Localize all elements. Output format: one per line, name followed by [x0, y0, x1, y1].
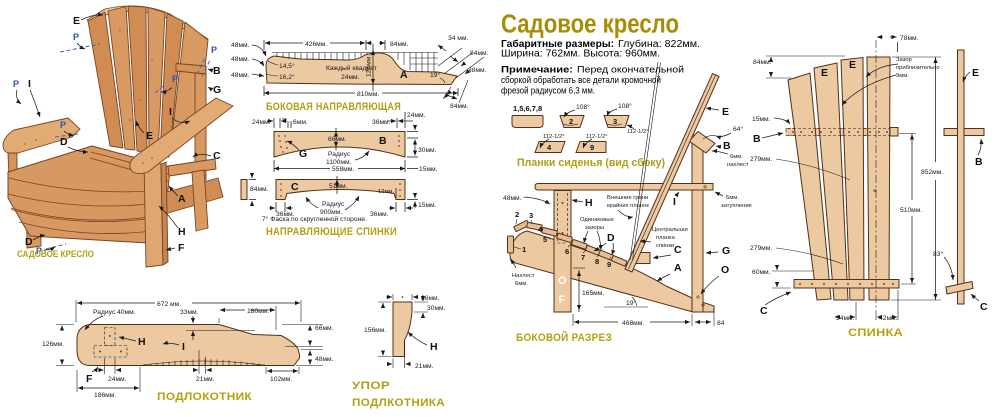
svg-text:D: D: [607, 232, 615, 244]
svg-text:54мм.: 54мм.: [836, 315, 855, 322]
svg-text:180мм.: 180мм.: [247, 308, 269, 315]
svg-text:21мм.: 21мм.: [415, 363, 434, 370]
svg-text:H: H: [585, 197, 593, 209]
svg-text:Ширина: 762мм. Высота: 960мм.: Ширина: 762мм. Высота: 960мм.: [501, 49, 660, 60]
svg-text:H: H: [178, 226, 186, 238]
svg-text:Одинаковые: Одинаковые: [580, 217, 614, 223]
svg-text:42мм.: 42мм.: [879, 315, 898, 322]
svg-text:Радиус 40мм.: Радиус 40мм.: [93, 309, 136, 316]
svg-text:108°: 108°: [618, 102, 632, 110]
svg-text:затупление: затупление: [721, 203, 752, 209]
svg-text:3: 3: [613, 117, 617, 126]
svg-text:84мм.: 84мм.: [753, 59, 772, 66]
svg-text:САДОВОЕ КРЕСЛО: САДОВОЕ КРЕСЛО: [17, 249, 94, 259]
svg-text:9мм.: 9мм.: [896, 73, 909, 79]
svg-text:156мм.: 156мм.: [364, 327, 386, 334]
svg-text:Зазор: Зазор: [896, 57, 912, 63]
svg-text:24мм.: 24мм.: [341, 74, 360, 81]
svg-text:Садовое кресло: Садовое кресло: [501, 11, 679, 39]
svg-text:F: F: [178, 242, 185, 254]
svg-text:спинки: спинки: [656, 243, 674, 249]
svg-text:2: 2: [569, 117, 573, 126]
svg-text:Радиус: Радиус: [328, 151, 351, 158]
svg-text:1100мм.: 1100мм.: [326, 159, 352, 166]
svg-text:78мм.: 78мм.: [900, 35, 919, 42]
svg-text:G: G: [722, 245, 730, 257]
svg-text:33мм.: 33мм.: [180, 309, 199, 316]
svg-text:E: E: [146, 130, 153, 142]
svg-text:510мм.: 510мм.: [900, 207, 922, 214]
svg-text:B: B: [975, 156, 983, 168]
svg-text:426мм.: 426мм.: [305, 41, 327, 48]
svg-text:B: B: [753, 133, 761, 145]
svg-text:A: A: [178, 193, 186, 205]
svg-text:P: P: [73, 32, 79, 42]
svg-text:126мм.: 126мм.: [42, 341, 64, 348]
svg-text:НАПРАВЛЯЮЩИЕ СПИНКИ: НАПРАВЛЯЮЩИЕ СПИНКИ: [266, 226, 397, 238]
svg-text:112-1/2°: 112-1/2°: [627, 129, 649, 135]
svg-text:108°: 108°: [576, 103, 590, 111]
svg-text:48мм.: 48мм.: [231, 56, 250, 63]
svg-text:1,5,6,7,8: 1,5,6,7,8: [513, 104, 542, 113]
svg-text:O: O: [558, 275, 567, 287]
svg-text:зазоры: зазоры: [585, 225, 604, 231]
svg-text:H: H: [430, 341, 438, 353]
svg-text:F: F: [86, 373, 93, 385]
svg-text:Внешние грани: Внешние грани: [607, 195, 648, 201]
svg-text:G: G: [213, 84, 221, 96]
svg-text:6мм.: 6мм.: [293, 119, 308, 126]
svg-text:P: P: [211, 45, 217, 55]
svg-text:P: P: [13, 79, 19, 89]
svg-text:15мм.: 15мм.: [418, 202, 437, 209]
svg-text:112-1/2°: 112-1/2°: [543, 134, 565, 140]
svg-text:B: B: [379, 135, 387, 147]
svg-text:Примечание:: Примечание:: [501, 65, 573, 75]
svg-text:БОКОВАЯ НАПРАВЛЯЮЩАЯ: БОКОВАЯ НАПРАВЛЯЮЩАЯ: [266, 101, 401, 113]
svg-text:фрезой радиусом 6,3 мм.: фрезой радиусом 6,3 мм.: [501, 86, 595, 96]
svg-text:12мм.: 12мм.: [378, 189, 394, 195]
svg-text:6мм.: 6мм.: [730, 154, 743, 160]
svg-text:24мм.: 24мм.: [108, 376, 127, 383]
svg-text:C: C: [674, 244, 682, 256]
svg-text:D: D: [60, 136, 68, 148]
svg-text:I: I: [28, 78, 31, 90]
svg-text:7° Фаска по скругленной сто: 7° Фаска по скругленной стороне.: [262, 215, 367, 223]
svg-text:B: B: [213, 65, 221, 77]
svg-text:A: A: [674, 262, 682, 274]
svg-text:84мм.: 84мм.: [470, 50, 489, 57]
svg-text:279мм.: 279мм.: [750, 245, 772, 252]
svg-text:8: 8: [595, 257, 599, 266]
svg-text:14,5°: 14,5°: [279, 62, 295, 70]
svg-text:38мм.: 38мм.: [468, 67, 487, 74]
svg-text:планка: планка: [656, 235, 676, 241]
svg-text:48мм.: 48мм.: [315, 356, 334, 363]
svg-text:2: 2: [515, 210, 519, 219]
svg-text:51мм.: 51мм.: [329, 183, 348, 190]
svg-text:C: C: [760, 305, 768, 317]
svg-text:C: C: [213, 150, 221, 162]
svg-text:64°: 64°: [733, 125, 743, 133]
svg-text:9: 9: [607, 260, 611, 269]
svg-text:D: D: [25, 236, 33, 248]
svg-text:30мм.: 30мм.: [418, 147, 437, 154]
svg-text:84: 84: [717, 320, 725, 327]
svg-text:F: F: [559, 294, 566, 306]
svg-text:672 мм.: 672 мм.: [157, 301, 181, 308]
svg-text:6: 6: [565, 247, 569, 256]
svg-text:P: P: [60, 120, 66, 130]
svg-text:36мм.: 36мм.: [370, 211, 389, 218]
svg-text:84мм.: 84мм.: [250, 186, 269, 193]
svg-text:112-1/2°: 112-1/2°: [586, 134, 608, 140]
svg-text:E: E: [972, 67, 979, 79]
svg-text:6мм.: 6мм.: [515, 281, 528, 287]
svg-text:P: P: [172, 74, 178, 84]
svg-text:Радиус: Радиус: [322, 201, 345, 208]
svg-text:ПОДЛКОТНИКА: ПОДЛКОТНИКА: [352, 397, 445, 409]
svg-text:9: 9: [590, 143, 594, 152]
svg-text:30мм.: 30мм.: [427, 305, 446, 312]
svg-text:6мм.: 6мм.: [726, 195, 739, 201]
svg-text:E: E: [73, 15, 80, 27]
svg-text:19°: 19°: [430, 71, 440, 79]
svg-text:Нахлест: Нахлест: [512, 273, 535, 279]
svg-text:468мм.: 468мм.: [622, 320, 644, 327]
svg-text:126мм.: 126мм.: [366, 55, 373, 77]
svg-text:24мм.: 24мм.: [252, 119, 271, 126]
svg-text:H: H: [138, 336, 146, 348]
svg-text:I: I: [169, 106, 172, 118]
svg-text:24мм.: 24мм.: [407, 112, 426, 119]
svg-text:34 мм.: 34 мм.: [448, 35, 468, 42]
svg-text:3: 3: [529, 211, 533, 220]
svg-text:60мм.: 60мм.: [752, 269, 771, 276]
svg-text:1: 1: [522, 245, 526, 254]
svg-text:66мм.: 66мм.: [315, 325, 334, 332]
svg-text:558мм.: 558мм.: [332, 166, 354, 173]
svg-text:900мм.: 900мм.: [320, 209, 342, 216]
svg-text:186мм.: 186мм.: [94, 392, 116, 399]
svg-text:84мм.: 84мм.: [450, 103, 469, 110]
svg-text:C: C: [980, 301, 988, 313]
svg-text:приблизительно: приблизительно: [896, 65, 940, 71]
svg-text:O: O: [721, 264, 729, 276]
svg-text:165мм.: 165мм.: [582, 290, 604, 297]
svg-text:48мм.: 48мм.: [231, 42, 250, 49]
svg-text:E: E: [821, 67, 828, 79]
svg-text:66мм.: 66мм.: [328, 136, 347, 143]
svg-text:БОКОВОЙ РАЗРЕЗ: БОКОВОЙ РАЗРЕЗ: [516, 331, 612, 344]
svg-text:48мм.: 48мм.: [231, 72, 250, 79]
svg-text:C: C: [291, 181, 299, 193]
svg-text:15мм.: 15мм.: [752, 116, 771, 123]
svg-text:крайних планок: крайних планок: [607, 202, 649, 209]
svg-text:21мм.: 21мм.: [196, 376, 215, 383]
svg-text:7: 7: [581, 253, 585, 262]
svg-text:102мм.: 102мм.: [270, 376, 292, 383]
svg-text:СПИНКА: СПИНКА: [848, 327, 903, 339]
svg-text:ПОДЛОКОТНИК: ПОДЛОКОТНИК: [157, 391, 252, 403]
svg-text:66мм.: 66мм.: [421, 295, 440, 302]
svg-text:16,2°: 16,2°: [279, 73, 295, 81]
svg-text:83°: 83°: [933, 250, 943, 258]
svg-text:48мм.: 48мм.: [503, 195, 522, 202]
svg-text:279мм.: 279мм.: [750, 156, 772, 163]
svg-text:Центральная: Центральная: [652, 227, 688, 233]
svg-text:нахлест: нахлест: [727, 162, 749, 168]
svg-text:¢: ¢: [873, 189, 879, 192]
svg-text:сборкой обработать все детали: сборкой обработать все детали кромочной: [501, 75, 661, 85]
svg-text:A: A: [400, 69, 408, 81]
svg-text:G: G: [299, 148, 307, 160]
svg-text:84мм.: 84мм.: [390, 41, 409, 48]
svg-text:5: 5: [543, 235, 547, 244]
svg-text:810мм.: 810мм.: [357, 91, 379, 98]
svg-text:E: E: [722, 106, 729, 118]
svg-text:УПОР: УПОР: [352, 380, 390, 392]
svg-text:I: I: [182, 341, 185, 353]
svg-text:852мм.: 852мм.: [921, 169, 943, 176]
svg-text:Перед окончательной: Перед окончательной: [577, 65, 684, 75]
svg-text:E: E: [849, 59, 856, 71]
svg-text:I: I: [673, 196, 676, 208]
svg-text:36мм.: 36мм.: [372, 119, 391, 126]
svg-text:15мм.: 15мм.: [419, 166, 438, 173]
svg-text:B: B: [723, 140, 731, 152]
